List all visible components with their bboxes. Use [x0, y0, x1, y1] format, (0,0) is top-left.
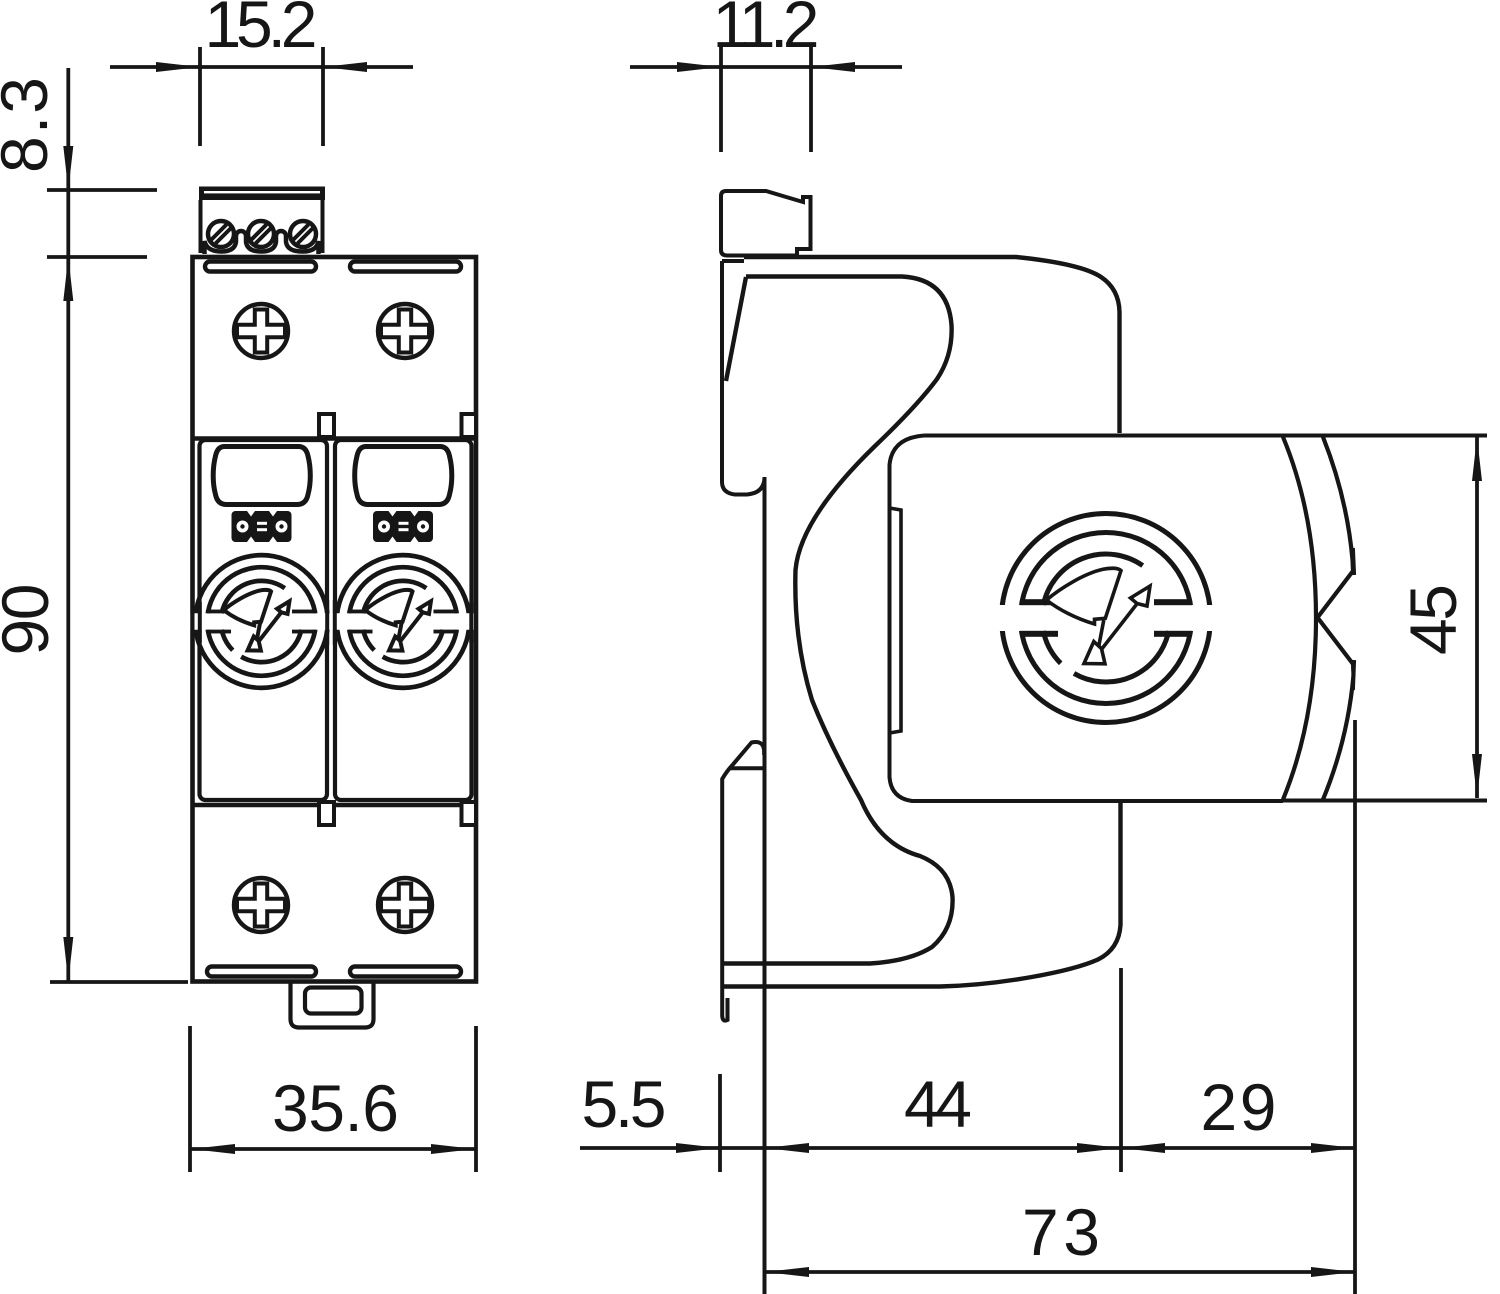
svg-text:8.3: 8.3 [0, 77, 61, 173]
svg-text:45: 45 [1396, 584, 1470, 655]
svg-text:11.2: 11.2 [713, 0, 820, 61]
svg-text:35.6: 35.6 [272, 1071, 399, 1145]
svg-text:5.5: 5.5 [582, 1067, 667, 1141]
svg-text:15.2: 15.2 [205, 0, 318, 61]
svg-text:44: 44 [904, 1067, 972, 1141]
svg-text:90: 90 [0, 584, 62, 656]
